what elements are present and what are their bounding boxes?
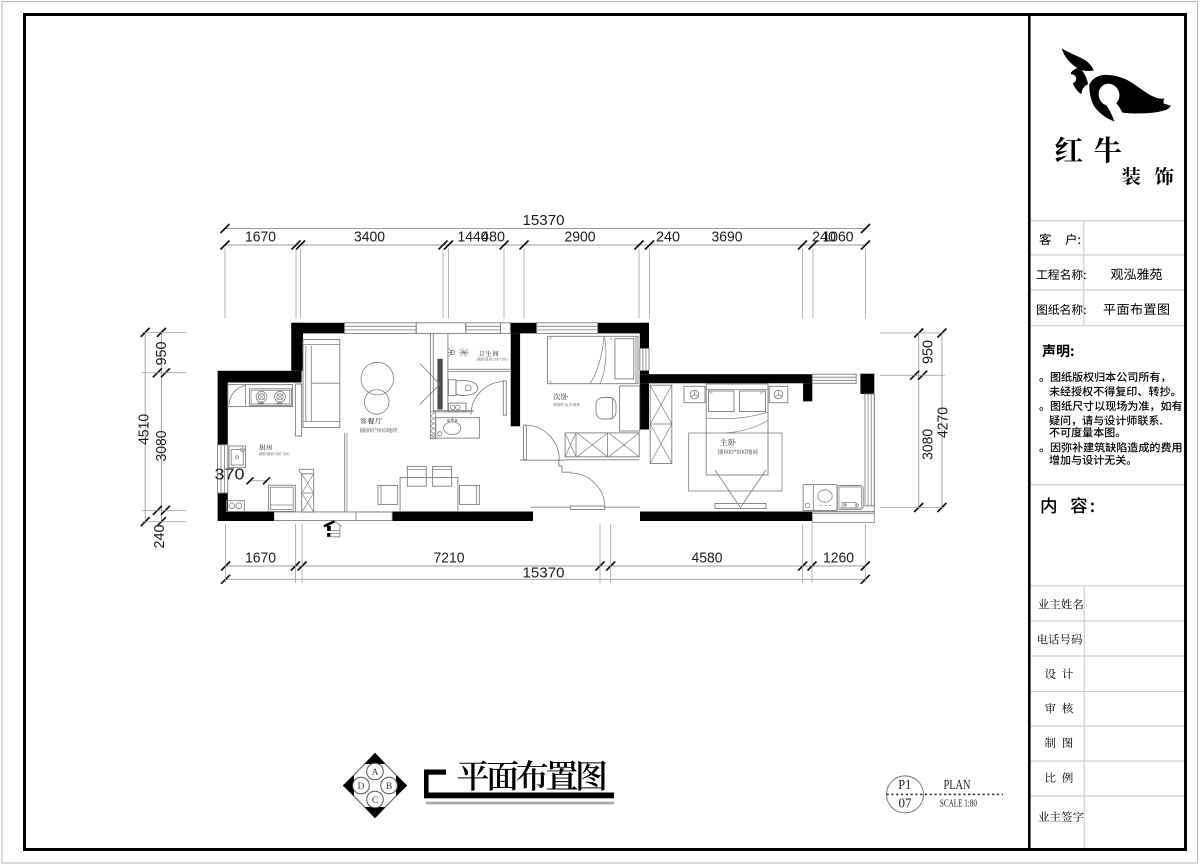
svg-text:480: 480 (481, 229, 505, 246)
svg-text:4510: 4510 (136, 414, 153, 445)
svg-text:3400: 3400 (354, 229, 385, 246)
svg-text:15370: 15370 (523, 565, 565, 582)
svg-text:1670: 1670 (245, 550, 276, 567)
svg-text:P1: P1 (898, 777, 911, 792)
svg-text:1670: 1670 (245, 229, 276, 246)
svg-text:PLAN: PLAN (944, 777, 971, 792)
svg-text:C: C (372, 796, 378, 806)
svg-text:SCALE 1:80: SCALE 1:80 (940, 799, 977, 810)
svg-text:07: 07 (899, 796, 912, 811)
svg-text:7210: 7210 (434, 550, 465, 567)
svg-text:1060: 1060 (823, 229, 854, 246)
svg-text:4270: 4270 (935, 407, 952, 438)
svg-text:240: 240 (151, 525, 168, 549)
svg-text:B: B (386, 782, 392, 792)
svg-text:2900: 2900 (565, 229, 596, 246)
svg-text:A: A (372, 768, 379, 778)
svg-text:370: 370 (215, 467, 245, 484)
svg-text:3690: 3690 (712, 229, 743, 246)
svg-text:950: 950 (153, 342, 170, 366)
svg-text:1260: 1260 (823, 550, 854, 567)
svg-text:4580: 4580 (692, 550, 723, 567)
svg-text:D: D (358, 782, 365, 792)
svg-text:240: 240 (656, 229, 680, 246)
svg-text:15370: 15370 (523, 212, 565, 229)
svg-text:950: 950 (920, 340, 937, 364)
svg-text:3080: 3080 (153, 431, 170, 462)
